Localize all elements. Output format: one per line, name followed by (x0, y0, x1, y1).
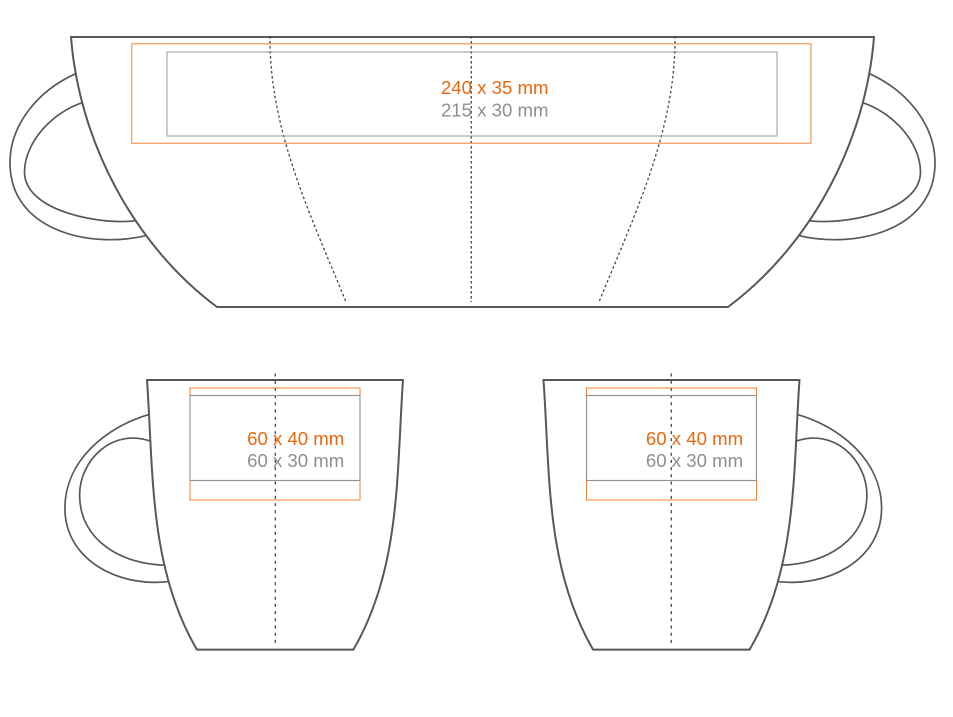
svg-text:60 x 40 mm: 60 x 40 mm (247, 428, 344, 449)
svg-text:60 x 30 mm: 60 x 30 mm (247, 450, 344, 471)
svg-text:60 x 30 mm: 60 x 30 mm (646, 450, 743, 471)
svg-text:60 x 40 mm: 60 x 40 mm (646, 428, 743, 449)
svg-text:240 x 35 mm: 240 x 35 mm (441, 77, 548, 98)
svg-text:215 x 30 mm: 215 x 30 mm (441, 99, 548, 120)
